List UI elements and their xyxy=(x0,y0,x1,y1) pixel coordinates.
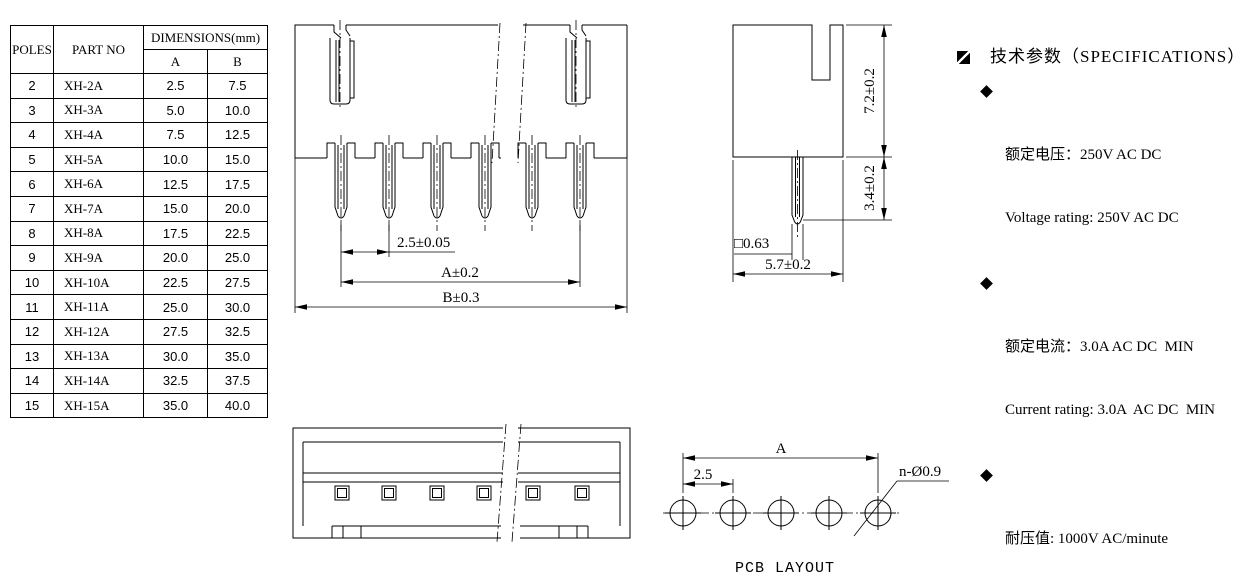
spec-item: 额定电压：250V AC DC Voltage rating: 250V AC … xyxy=(955,82,1251,271)
side-view-drawing: 7.2±0.2 3.4±0.2 □0.63 5.7±0.2 xyxy=(700,10,950,302)
cell-poles: 11 xyxy=(11,295,54,320)
housing-outline xyxy=(733,25,843,157)
latch-slots xyxy=(330,20,590,110)
dim-label-a: A±0.2 xyxy=(441,265,479,281)
table-row: 11XH-11A25.030.0 xyxy=(11,295,268,320)
col-header-a: A xyxy=(144,50,208,74)
col-header-poles: POLES xyxy=(11,26,54,74)
pins xyxy=(327,135,594,231)
cell-poles: 3 xyxy=(11,98,54,123)
table-row: 8XH-8A17.522.5 xyxy=(11,221,268,246)
datasheet-page: POLES PART NO DIMENSIONS(mm) A B 2XH-2A2… xyxy=(0,0,1251,581)
col-header-b: B xyxy=(208,50,268,74)
cell-part-no: XH-13A xyxy=(54,344,144,369)
cell-poles: 6 xyxy=(11,172,54,197)
dim-label-b: B±0.3 xyxy=(443,290,480,306)
cell-dim-a: 10.0 xyxy=(144,147,208,172)
spec-item: 耐压值: 1000V AC/minute Withstand voltage: … xyxy=(955,466,1251,581)
cell-part-no: XH-11A xyxy=(54,295,144,320)
spec-line-cn: 耐压值: 1000V AC/minute xyxy=(1005,529,1251,550)
pin-holes xyxy=(335,486,589,500)
cell-dim-b: 25.0 xyxy=(208,246,268,271)
cell-poles: 15 xyxy=(11,393,54,418)
pin xyxy=(792,150,803,240)
table-row: 13XH-13A30.035.0 xyxy=(11,344,268,369)
cell-poles: 10 xyxy=(11,270,54,295)
cell-poles: 7 xyxy=(11,196,54,221)
table-row: 6XH-6A12.517.5 xyxy=(11,172,268,197)
cell-part-no: XH-4A xyxy=(54,123,144,148)
spec-line-en: Voltage rating: 250V AC DC xyxy=(1005,208,1251,229)
dim-label-height: 7.2±0.2 xyxy=(862,68,878,114)
spec-line-cn: 额定电压：250V AC DC xyxy=(1005,145,1251,166)
specifications-list: 额定电压：250V AC DC Voltage rating: 250V AC … xyxy=(955,82,1251,581)
cell-dim-b: 17.5 xyxy=(208,172,268,197)
col-header-dimensions: DIMENSIONS(mm) xyxy=(144,26,268,50)
cell-part-no: XH-2A xyxy=(54,74,144,99)
table-row: 2XH-2A2.57.5 xyxy=(11,74,268,99)
col-header-part-no: PART NO xyxy=(54,26,144,74)
cell-part-no: XH-10A xyxy=(54,270,144,295)
cell-poles: 14 xyxy=(11,369,54,394)
cell-dim-a: 32.5 xyxy=(144,369,208,394)
housing-outline xyxy=(295,25,627,158)
spec-line-cn: 额定电流：3.0A AC DC MIN xyxy=(1005,337,1251,358)
cell-dim-b: 12.5 xyxy=(208,123,268,148)
table-row: 12XH-12A27.532.5 xyxy=(11,319,268,344)
cell-dim-b: 32.5 xyxy=(208,319,268,344)
cell-part-no: XH-9A xyxy=(54,246,144,271)
table-row: 14XH-14A32.537.5 xyxy=(11,369,268,394)
cell-part-no: XH-15A xyxy=(54,393,144,418)
dim-label-pin-square: □0.63 xyxy=(734,236,769,252)
cell-poles: 2 xyxy=(11,74,54,99)
table-row: 10XH-10A22.527.5 xyxy=(11,270,268,295)
front-view-drawing: 2.5±0.05 A±0.2 B±0.3 xyxy=(283,10,643,320)
top-view-drawing xyxy=(290,422,635,550)
cell-dim-a: 25.0 xyxy=(144,295,208,320)
table-row: 9XH-9A20.025.0 xyxy=(11,246,268,271)
pads xyxy=(665,496,896,530)
specifications-section: 技术参数（SPECIFICATIONS） 额定电压：250V AC DC Vol… xyxy=(955,46,1251,581)
section-marker-icon xyxy=(957,51,970,64)
housing-outline xyxy=(293,428,630,538)
cell-dim-a: 27.5 xyxy=(144,319,208,344)
dim-label-pitch: 2.5 xyxy=(694,467,713,483)
dim-label-span: A xyxy=(776,441,787,457)
cell-dim-a: 30.0 xyxy=(144,344,208,369)
cell-dim-a: 20.0 xyxy=(144,246,208,271)
table-row: 5XH-5A10.015.0 xyxy=(11,147,268,172)
cell-dim-a: 5.0 xyxy=(144,98,208,123)
cell-dim-b: 20.0 xyxy=(208,196,268,221)
cell-dim-b: 37.5 xyxy=(208,369,268,394)
break-lines xyxy=(492,23,526,163)
diamond-bullet-icon xyxy=(980,277,993,290)
pcb-layout-caption: PCB LAYOUT xyxy=(735,560,835,577)
cell-dim-b: 35.0 xyxy=(208,344,268,369)
table-row: 7XH-7A15.020.0 xyxy=(11,196,268,221)
diamond-bullet-icon xyxy=(980,469,993,482)
cell-dim-a: 35.0 xyxy=(144,393,208,418)
cell-dim-a: 22.5 xyxy=(144,270,208,295)
cell-dim-a: 12.5 xyxy=(144,172,208,197)
cell-dim-a: 17.5 xyxy=(144,221,208,246)
cell-part-no: XH-3A xyxy=(54,98,144,123)
cell-part-no: XH-14A xyxy=(54,369,144,394)
dim-label-depth: 5.7±0.2 xyxy=(765,257,811,273)
pcb-layout-drawing: A 2.5 n-Ø0.9 PCB LAYOUT xyxy=(635,425,950,580)
cell-dim-a: 7.5 xyxy=(144,123,208,148)
cell-dim-b: 27.5 xyxy=(208,270,268,295)
cell-poles: 9 xyxy=(11,246,54,271)
cell-part-no: XH-7A xyxy=(54,196,144,221)
cell-dim-b: 30.0 xyxy=(208,295,268,320)
parts-table: POLES PART NO DIMENSIONS(mm) A B 2XH-2A2… xyxy=(10,25,268,418)
cell-part-no: XH-8A xyxy=(54,221,144,246)
dim-label-pin-length: 3.4±0.2 xyxy=(862,165,878,211)
cell-dim-b: 22.5 xyxy=(208,221,268,246)
cell-part-no: XH-12A xyxy=(54,319,144,344)
cell-poles: 12 xyxy=(11,319,54,344)
spec-line-en: Current rating: 3.0A AC DC MIN xyxy=(1005,400,1251,421)
specifications-header: 技术参数（SPECIFICATIONS） xyxy=(957,46,1251,68)
cell-poles: 5 xyxy=(11,147,54,172)
table-row: 15XH-15A35.040.0 xyxy=(11,393,268,418)
dim-label-pitch: 2.5±0.05 xyxy=(397,235,450,251)
table-row: 3XH-3A5.010.0 xyxy=(11,98,268,123)
cell-dim-a: 15.0 xyxy=(144,196,208,221)
cell-dim-b: 15.0 xyxy=(208,147,268,172)
table-header-row: POLES PART NO DIMENSIONS(mm) xyxy=(11,26,268,50)
cell-dim-b: 10.0 xyxy=(208,98,268,123)
cell-poles: 8 xyxy=(11,221,54,246)
dim-label-hole: n-Ø0.9 xyxy=(899,464,941,480)
specifications-title: 技术参数（SPECIFICATIONS） xyxy=(990,46,1245,68)
cell-part-no: XH-6A xyxy=(54,172,144,197)
spec-item: 额定电流：3.0A AC DC MIN Current rating: 3.0A… xyxy=(955,274,1251,463)
cell-poles: 13 xyxy=(11,344,54,369)
cell-dim-a: 2.5 xyxy=(144,74,208,99)
table-row: 4XH-4A7.512.5 xyxy=(11,123,268,148)
cell-poles: 4 xyxy=(11,123,54,148)
diamond-bullet-icon xyxy=(980,85,993,98)
cell-part-no: XH-5A xyxy=(54,147,144,172)
cell-dim-b: 7.5 xyxy=(208,74,268,99)
cell-dim-b: 40.0 xyxy=(208,393,268,418)
